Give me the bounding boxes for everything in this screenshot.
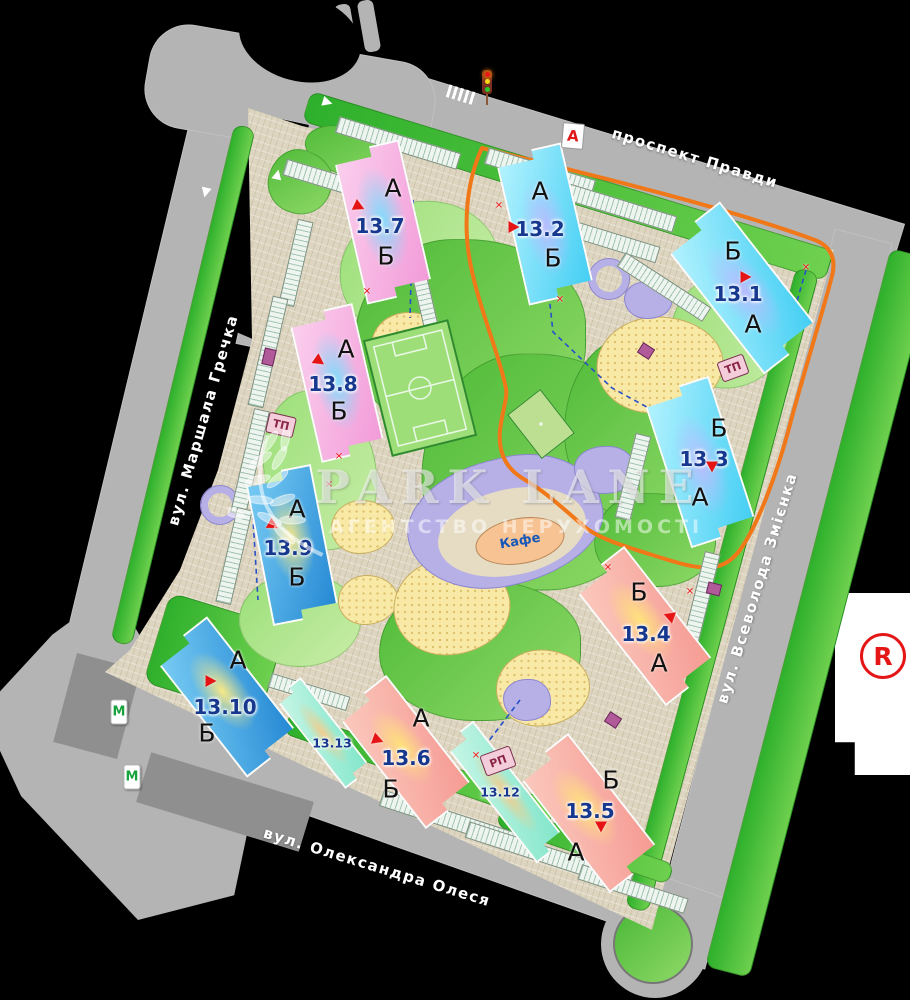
entrance-arrow-icon xyxy=(509,221,526,233)
site-plan-map: Кафе А 13.7 Б А 13.2 Б Б 13.1 А А 13.8 Б… xyxy=(0,0,910,1000)
section-label: А xyxy=(531,177,548,206)
section-label: Б xyxy=(602,766,619,795)
section-label: А xyxy=(384,174,401,203)
building-number: 13.4 xyxy=(621,622,670,646)
building-number: 13.8 xyxy=(308,372,357,396)
section-label: Б xyxy=(724,237,741,266)
entrance-arrow-icon xyxy=(595,822,607,839)
building-number: 13.3 xyxy=(679,447,728,471)
building-number: 13.7 xyxy=(355,214,404,238)
distribution-point-label: РП xyxy=(488,752,509,770)
entrance-arrow-icon xyxy=(741,271,758,283)
x-mark-icon: ✕ xyxy=(363,287,371,298)
transformer-label: ТП xyxy=(723,359,743,377)
section-label: А xyxy=(337,335,354,364)
section-label: Б xyxy=(198,719,215,748)
section-label: А xyxy=(412,704,429,733)
x-mark-icon: ✕ xyxy=(335,452,343,463)
building-number: 13.9 xyxy=(263,536,312,560)
section-label: Б xyxy=(288,563,305,592)
section-label: А xyxy=(567,838,584,867)
registered-letter: R xyxy=(873,642,892,671)
metro-entrance-badge: М xyxy=(111,700,128,725)
section-label: Б xyxy=(382,775,399,804)
x-mark-icon: ✕ xyxy=(686,587,694,598)
metro-label: М xyxy=(126,770,139,785)
bus-route-sign: А xyxy=(561,122,585,150)
section-label: А xyxy=(691,483,708,512)
cafe-label: Кафе xyxy=(498,530,541,552)
entrance-arrow-icon xyxy=(706,462,718,479)
building-number: 13.1 xyxy=(713,282,762,306)
building-number: 13.5 xyxy=(565,799,614,823)
section-label: А xyxy=(229,646,246,675)
x-mark-icon: ✕ xyxy=(495,201,503,212)
section-label: Б xyxy=(377,242,394,271)
bus-route-label: А xyxy=(566,127,579,146)
metro-entrance-badge: М xyxy=(124,765,141,790)
x-mark-icon: ✕ xyxy=(472,751,480,762)
building-number: 13.6 xyxy=(381,746,430,770)
x-mark-icon: ✕ xyxy=(556,295,564,306)
x-mark-icon: ✕ xyxy=(604,563,612,574)
metro-label: М xyxy=(113,705,126,720)
building-number: 13.13 xyxy=(312,736,352,751)
section-label: Б xyxy=(710,414,727,443)
section-label: Б xyxy=(330,397,347,426)
registered-trademark-icon: R xyxy=(860,633,906,679)
section-label: А xyxy=(650,649,667,678)
entrance-arrow-icon xyxy=(206,675,223,687)
section-label: А xyxy=(288,495,305,524)
section-label: Б xyxy=(544,244,561,273)
section-label: Б xyxy=(630,578,647,607)
section-label: А xyxy=(744,310,761,339)
transformer-label: ТП xyxy=(271,417,290,433)
x-mark-icon: ✕ xyxy=(325,480,333,491)
x-mark-icon: ✕ xyxy=(802,263,810,274)
building-number: 13.10 xyxy=(193,695,256,719)
traffic-light-icon xyxy=(482,70,492,94)
building-number: 13.12 xyxy=(480,785,520,800)
